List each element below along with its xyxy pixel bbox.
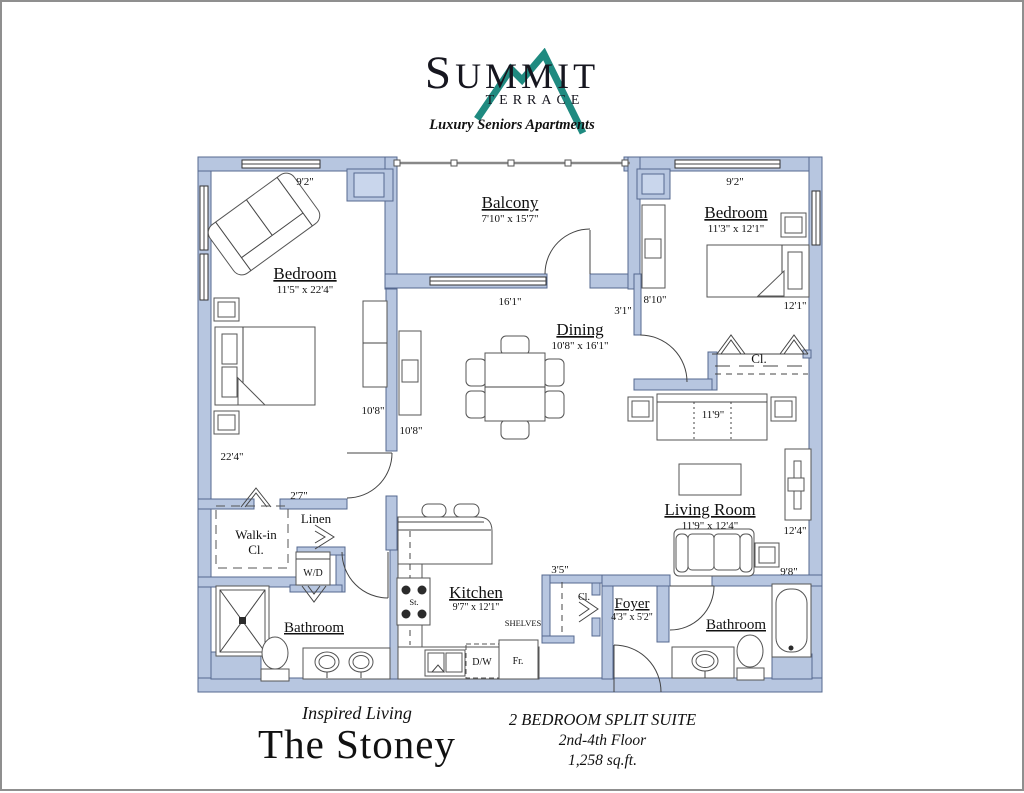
tv-unit-icon — [785, 449, 811, 520]
logo-terrace: TERRACE — [2, 93, 1022, 109]
bathtub-icon — [772, 584, 811, 657]
dim-partition-a: 10'8" — [362, 405, 385, 417]
dim-partition-b: 10'8" — [400, 425, 423, 437]
room-dims-bedroom-left: 11'5" x 22'4" — [277, 284, 334, 296]
bed-icon — [215, 327, 315, 405]
room-dims-kitchen: 9'7" x 12'1" — [453, 602, 500, 613]
dim-foyer-closet: 3'5" — [551, 564, 568, 576]
label-dishwasher: D/W — [472, 657, 492, 668]
sofa-icon — [674, 529, 754, 576]
room-label-foyer: Foyer — [615, 596, 650, 612]
dim-lr-right: 12'4" — [784, 525, 807, 537]
room-dims-foyer: 4'3" x 5'2" — [611, 612, 653, 623]
room-label-living: Living Room — [664, 500, 755, 519]
room-label-balcony: Balcony — [482, 193, 539, 212]
dim-top-left: 9'2" — [296, 176, 313, 188]
dim-top-right: 9'2" — [726, 176, 743, 188]
room-dims-living: 11'9" x 12'4" — [682, 520, 739, 532]
label-washer-dryer: W/D — [303, 568, 322, 579]
label-shelves: SHELVES — [505, 618, 542, 628]
room-label-linen: Linen — [301, 511, 332, 526]
logo: SUMMIT TERRACE Luxury Seniors Apartments — [2, 48, 1022, 134]
dim-hall: 3'1" — [614, 305, 631, 317]
room-label-kitchen: Kitchen — [449, 583, 503, 602]
bed-icon — [707, 245, 809, 297]
dim-br-bottom: 12'1" — [784, 300, 807, 312]
balcony-railing — [394, 160, 630, 166]
logo-text: SUMMIT TERRACE Luxury Seniors Apartments — [2, 48, 1022, 134]
label-fridge: Fr. — [513, 656, 524, 667]
room-label-walkin-1: Walk-in — [235, 527, 277, 542]
label-stove: St. — [409, 597, 418, 607]
room-label-bedroom-left: Bedroom — [273, 264, 336, 283]
room-label-bedroom-right: Bedroom — [704, 203, 767, 222]
sink-icon — [425, 650, 465, 676]
toilet-icon — [737, 635, 764, 680]
room-dims-bedroom-right: 11'3" x 12'1" — [708, 223, 765, 235]
dining-table-icon — [466, 336, 564, 439]
room-label-bathroom-right: Bathroom — [706, 617, 766, 633]
vanity-icon — [672, 647, 734, 678]
room-dims-balcony: 7'10" x 15'7" — [482, 213, 539, 225]
shower-icon — [216, 586, 269, 656]
label-closet-foyer: Cl. — [578, 592, 590, 603]
dim-left-height: 22'4" — [221, 451, 244, 463]
vanity-icon — [303, 648, 390, 679]
dim-balcony-width: 16'1" — [499, 296, 522, 308]
label-closet-bedroom: Cl. — [751, 351, 767, 366]
room-label-walkin-2: Cl. — [248, 542, 264, 557]
room-label-dining: Dining — [556, 320, 604, 339]
dim-linen-top: 2'7" — [290, 490, 307, 502]
flyer-page: SUMMIT TERRACE Luxury Seniors Apartments — [2, 2, 1022, 789]
logo-tagline: Luxury Seniors Apartments — [2, 117, 1022, 134]
dim-closet-sofa: 11'9" — [702, 409, 725, 421]
bar-stool-icon — [422, 504, 446, 517]
dim-lr-right2: 9'8" — [780, 566, 797, 578]
dim-br-left: 8'10" — [644, 294, 667, 306]
bar-stool-icon — [454, 504, 479, 517]
room-dims-dining: 10'8" x 16'1" — [552, 340, 609, 352]
room-label-bathroom-left: Bathroom — [284, 620, 344, 636]
toilet-icon — [261, 637, 289, 681]
